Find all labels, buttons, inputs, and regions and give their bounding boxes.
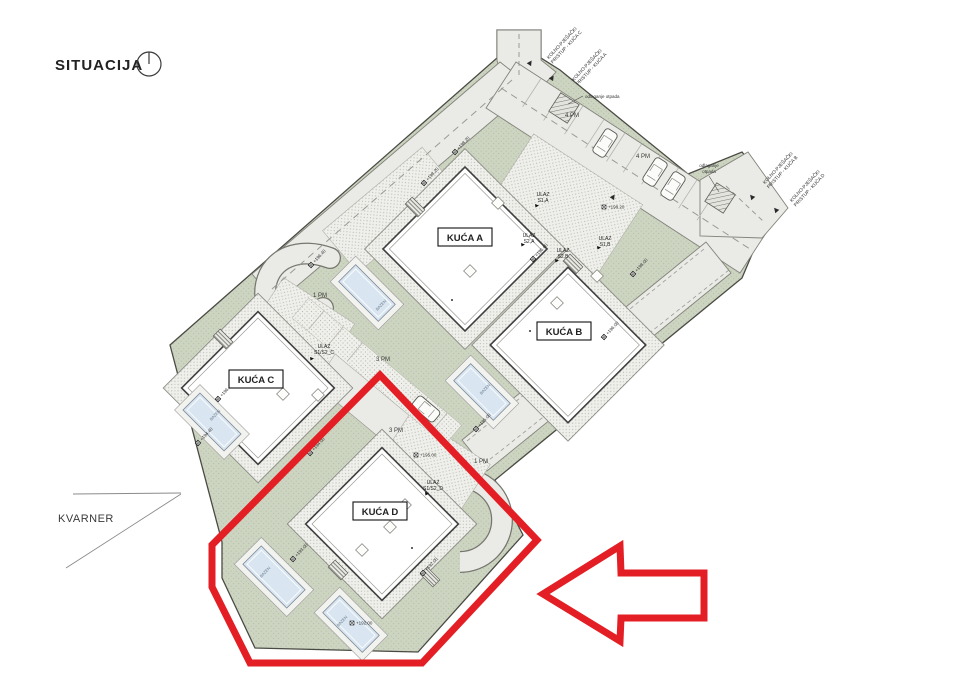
entrance-label: S2,A: [524, 239, 536, 245]
house-c-label: KUĆA C: [229, 370, 283, 388]
waste-label: otpada: [702, 169, 716, 174]
elevation-value: +192.00: [356, 621, 373, 626]
elevation-value: +195.00: [420, 453, 437, 458]
access-road-label: PRISTUP - KUĆA D: [792, 172, 827, 208]
svg-text:KUĆA D: KUĆA D: [362, 506, 399, 518]
svg-text:KUĆA A: KUĆA A: [447, 232, 483, 244]
access-road-label: PRISTUP - KUĆA C: [549, 29, 584, 65]
entrance-label: S1,B: [600, 242, 612, 248]
entrance-label: S1/S2_D: [423, 486, 443, 492]
region-label: KVARNER: [58, 513, 114, 525]
svg-text:KUĆA B: KUĆA B: [546, 326, 583, 338]
entrance-label: S2,B: [558, 254, 570, 260]
parking-label: 3 PM: [376, 357, 390, 363]
highlight-arrow-icon: [543, 546, 704, 641]
parking-label: 4 PM: [636, 154, 650, 160]
access-road-label: PRISTUP - KUĆA B: [765, 154, 799, 190]
sheet-title: SITUACIJA: [55, 52, 161, 76]
svg-text:KUĆA C: KUĆA C: [238, 374, 275, 386]
entrance-label: S1/S2_C: [314, 350, 334, 356]
entrance-label: S1,A: [538, 198, 550, 204]
parking-label: 4 PM: [565, 113, 579, 119]
situation-plan-drawing: 4 PM 4 PM 1 PM 3 PM 3 PM 1 PM ULAZS1,A U…: [0, 0, 960, 676]
site-plan-sheet: 4 PM 4 PM 1 PM 3 PM 3 PM 1 PM ULAZS1,A U…: [0, 0, 960, 676]
waste-label: odlaganje otpada: [585, 94, 620, 99]
house-d-label: KUĆA D: [353, 502, 407, 520]
house-a-label: KUĆA A: [438, 228, 492, 246]
kvarner-annotation: KVARNER: [58, 493, 181, 568]
access-road-label: PRISTUP - KUĆA A: [574, 51, 609, 87]
house-b-label: KUĆA B: [537, 322, 591, 340]
page-title: SITUACIJA: [55, 57, 143, 74]
parking-label: 1 PM: [313, 293, 327, 299]
elevation-value: +198.20: [608, 205, 625, 210]
waste-label: odlaganje: [699, 163, 719, 168]
parking-label: 1 PM: [474, 459, 488, 465]
parking-label: 3 PM: [389, 428, 403, 434]
